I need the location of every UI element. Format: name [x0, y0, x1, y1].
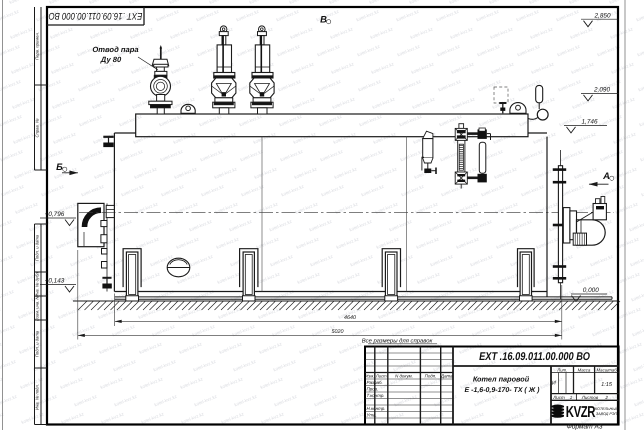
- svg-text:Разраб.: Разраб.: [367, 380, 383, 385]
- svg-text:2,850: 2,850: [594, 12, 611, 19]
- svg-text:Лист: Лист: [375, 374, 387, 379]
- svg-text:2: 2: [604, 395, 608, 400]
- svg-text:ЕХТ .16.09.011.00.000 ВО: ЕХТ .16.09.011.00.000 ВО: [48, 10, 142, 21]
- svg-text:Все размеры для справок: Все размеры для справок: [362, 337, 433, 344]
- svg-text:Утв.: Утв.: [367, 413, 377, 418]
- svg-text:2,090: 2,090: [593, 87, 610, 94]
- svg-text:Инв. № дубл.: Инв. № дубл.: [34, 271, 39, 297]
- svg-text:N докум.: N докум.: [395, 374, 413, 379]
- svg-text:Масштаб: Масштаб: [597, 367, 618, 372]
- svg-text:В: В: [320, 14, 327, 25]
- svg-text:Дата: Дата: [440, 374, 453, 379]
- svg-text:КОТЕЛЬНЫЙ: КОТЕЛЬНЫЙ: [595, 406, 619, 411]
- svg-text:Котел паровой: Котел паровой: [473, 374, 530, 383]
- svg-text:Подп. и дата: Подп. и дата: [34, 234, 39, 261]
- svg-text:Н.контр.: Н.контр.: [367, 406, 386, 411]
- svg-text:1:15: 1:15: [601, 382, 613, 388]
- svg-text:+0,143: +0,143: [45, 278, 65, 285]
- svg-text:Взам. инв. №: Взам. инв. №: [34, 295, 39, 321]
- svg-text:Масса: Масса: [578, 367, 591, 372]
- svg-text:ЗАВОД РЭП: ЗАВОД РЭП: [596, 412, 617, 416]
- svg-text:Подп.: Подп.: [425, 374, 437, 379]
- svg-text:Е -1,6-0,9-170- ТХ ( Ж ): Е -1,6-0,9-170- ТХ ( Ж ): [465, 386, 541, 394]
- svg-text:KVZR: KVZR: [566, 404, 596, 421]
- svg-text:Ду 80: Ду 80: [100, 55, 122, 64]
- svg-text:Изм.: Изм.: [365, 374, 374, 379]
- svg-text:Инв. № подл.: Инв. № подл.: [34, 384, 39, 410]
- svg-text:4640: 4640: [344, 315, 356, 321]
- svg-text:0,000: 0,000: [583, 287, 599, 294]
- svg-text:Формат А3: Формат А3: [566, 423, 602, 430]
- svg-text:ЕХТ .16.09.011.00.000 ВО: ЕХТ .16.09.011.00.000 ВО: [479, 351, 590, 363]
- svg-text:И: И: [552, 381, 556, 387]
- svg-text:5020: 5020: [332, 329, 344, 335]
- svg-text:Т.контр.: Т.контр.: [367, 393, 385, 398]
- svg-text:Отвод пара: Отвод пара: [92, 45, 138, 54]
- svg-text:Б: Б: [56, 161, 63, 172]
- svg-text:1,746: 1,746: [582, 119, 598, 126]
- svg-text:+0,796: +0,796: [45, 211, 65, 218]
- svg-text:Подп. и дата: Подп. и дата: [34, 330, 39, 357]
- svg-text:А: А: [602, 170, 610, 181]
- svg-text:Листов: Листов: [581, 395, 599, 400]
- svg-text:Лит.: Лит.: [556, 367, 567, 372]
- svg-text:Лист: Лист: [552, 395, 565, 400]
- svg-text:Справ. №: Справ. №: [34, 118, 39, 137]
- svg-text:Перв. примен.: Перв. примен.: [34, 32, 39, 60]
- svg-text:Пров.: Пров.: [367, 387, 379, 392]
